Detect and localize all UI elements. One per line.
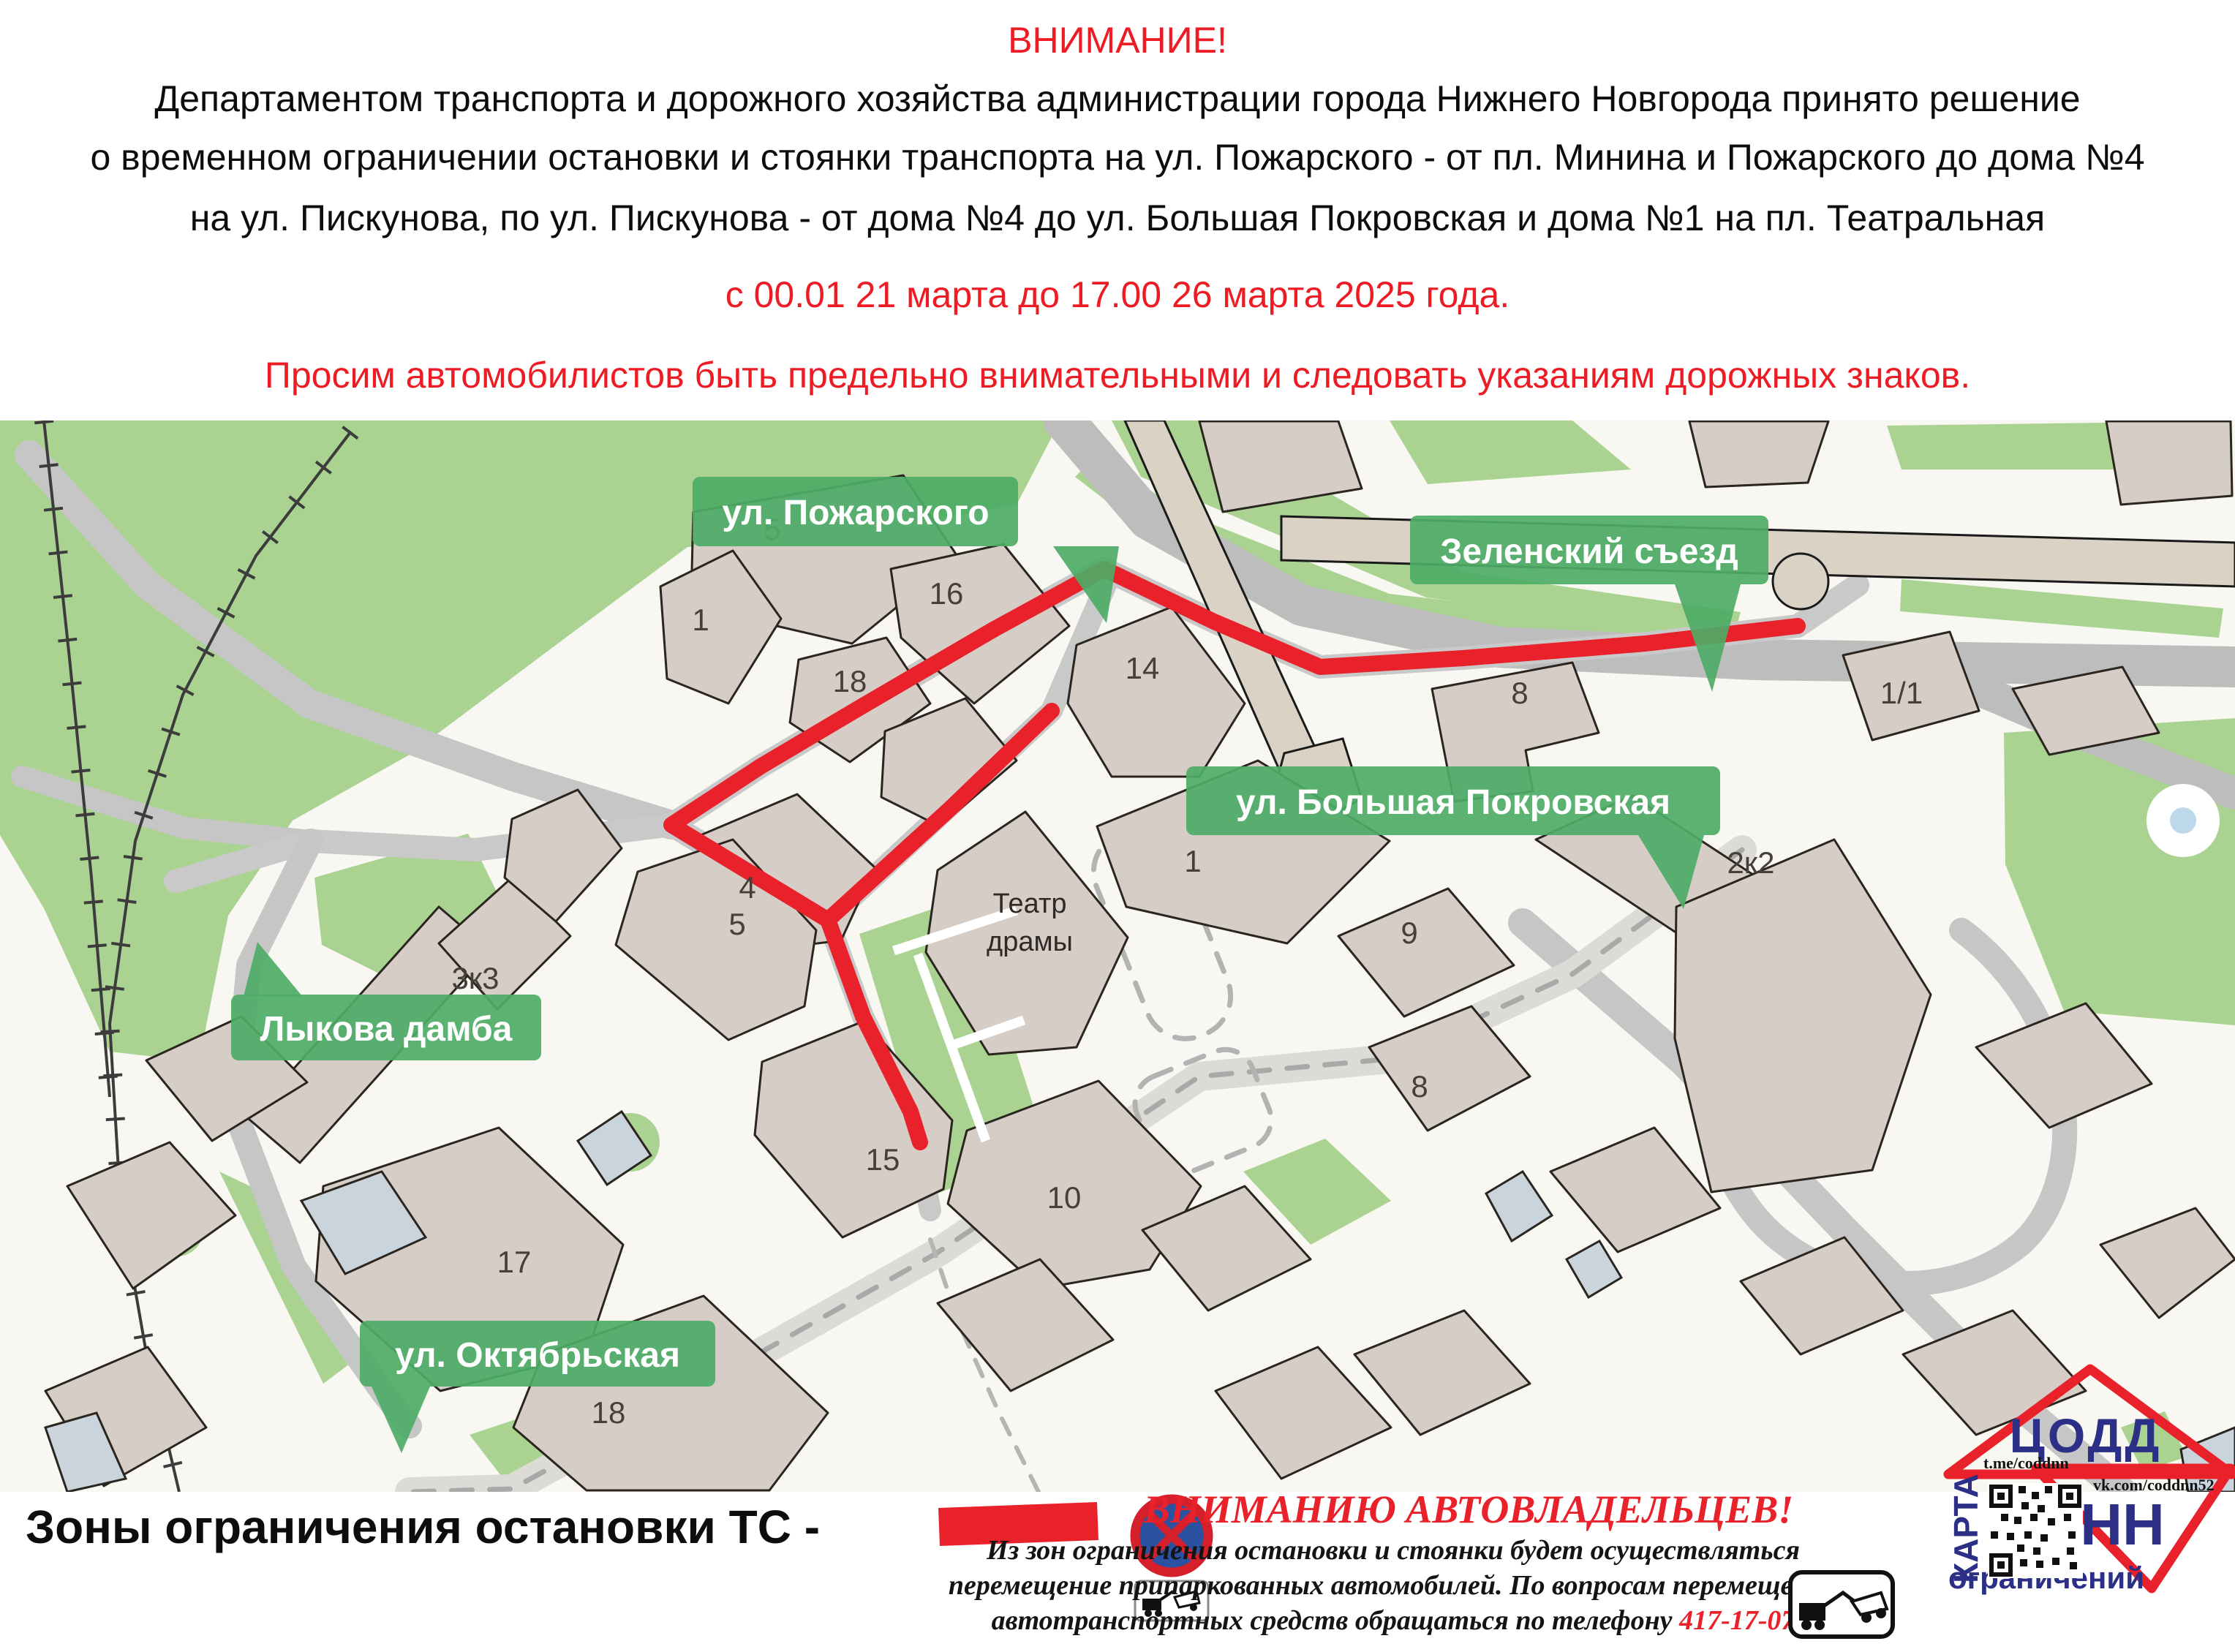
building-number: 17 — [497, 1245, 532, 1279]
building-number: 14 — [1126, 651, 1160, 685]
label-text: Лыкова дамба — [260, 1010, 513, 1049]
building-footprint — [2106, 421, 2232, 505]
building-number: 8 — [1411, 1069, 1428, 1104]
wheel — [1814, 1620, 1825, 1630]
tow-truck-body — [1799, 1603, 1825, 1621]
theater-label: Театр — [992, 889, 1066, 919]
poster: ВНИМАНИЕ! Департаментом транспорта и дор… — [0, 0, 2235, 1652]
tow-truck-icon — [1790, 1572, 1893, 1637]
building-number: 3к3 — [451, 961, 499, 995]
label-text: ул. Пожарского — [722, 494, 989, 532]
notice-line2: перемещение припаркованных автомобилей. … — [949, 1570, 1838, 1601]
building-number: 4 — [739, 870, 755, 905]
header-line2: Департаментом транспорта и дорожного хоз… — [154, 78, 2080, 119]
qr-finder — [1989, 1485, 2013, 1508]
kremlin-tower — [1773, 554, 1828, 609]
logo-telegram: t.me/coddnn — [1983, 1454, 2069, 1472]
header-attention: ВНИМАНИЕ! — [1008, 20, 1227, 61]
notice-line1: Из зон ограничения остановки и стоянки б… — [986, 1535, 1800, 1566]
pond-center — [2170, 807, 2196, 834]
logo-city: НН — [2080, 1492, 2165, 1557]
building-number: 15 — [866, 1142, 900, 1177]
notice-line3-text: автотранспортных средств обращаться по т… — [992, 1605, 1679, 1636]
building-footprint — [1689, 421, 1828, 487]
building-number: 10 — [1047, 1180, 1082, 1215]
building-number: 1/1 — [1880, 676, 1923, 710]
building-number: 2к2 — [1727, 845, 1774, 880]
building-number: 1 — [692, 603, 709, 637]
building-number: 1 — [1184, 844, 1201, 878]
qr-code — [1988, 1483, 2083, 1578]
building-number: 18 — [833, 664, 867, 698]
wheel — [1876, 1608, 1886, 1618]
notice-line3: автотранспортных средств обращаться по т… — [992, 1605, 1797, 1636]
building-number: 5 — [728, 907, 745, 941]
poster-canvas: ВНИМАНИЕ! Департаментом транспорта и дор… — [0, 0, 2235, 1652]
notice-phone: 417-17-07 — [1678, 1605, 1796, 1636]
header-warning: Просим автомобилистов быть предельно вни… — [265, 355, 1970, 396]
qr-finder — [2058, 1485, 2081, 1508]
label-text: Зеленский съезд — [1440, 532, 1738, 571]
header-block: ВНИМАНИЕ! Департаментом транспорта и дор… — [90, 20, 2144, 396]
building-number: 16 — [930, 576, 964, 611]
wheel — [1801, 1620, 1812, 1630]
header-dates: с 00.01 21 марта до 17.00 26 марта 2025 … — [725, 274, 1510, 315]
city-map: 5 1 16 18 14 8 1/1 4 1 9 2к2 5 3к3 8 15 … — [0, 339, 2235, 1492]
building-number: 9 — [1401, 916, 1417, 950]
building-number: 18 — [592, 1395, 626, 1430]
header-line4: на ул. Пискунова, по ул. Пискунова - от … — [190, 197, 2045, 238]
label-text: ул. Октябрьская — [395, 1336, 680, 1375]
building-number: 8 — [1511, 676, 1528, 710]
notice-title: ВНИМАНИЮ АВТОВЛАДЕЛЬЦЕВ! — [1143, 1487, 1794, 1531]
theater-label: драмы — [987, 927, 1073, 957]
qr-finder — [1989, 1553, 2013, 1577]
wheel — [1861, 1613, 1872, 1623]
label-text: ул. Большая Покровская — [1236, 783, 1670, 822]
legend-text: Зоны ограничения остановки ТС - — [26, 1501, 820, 1553]
header-line3: о временном ограничении остановки и стоя… — [90, 137, 2144, 178]
